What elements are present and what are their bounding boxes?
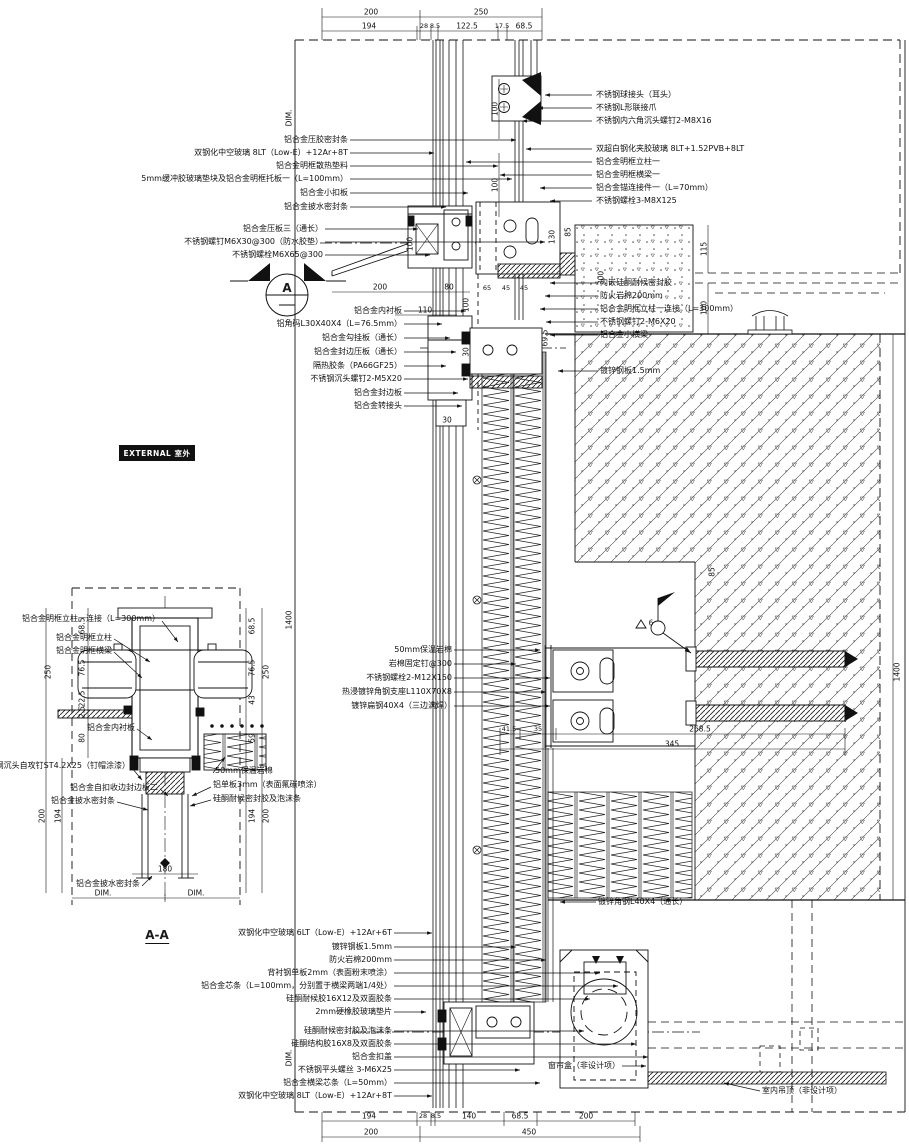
annotation: 铝合金小扣板 (300, 189, 348, 197)
annotation: 铝合金封边压板（通长） (314, 348, 402, 356)
dim-text: 45 (520, 285, 528, 292)
annotation: 铝合金明框立柱 (56, 634, 112, 642)
upper-transom-assembly (332, 202, 575, 278)
insulation-pins (473, 476, 481, 854)
dim-text: 200 (364, 1128, 378, 1136)
dim-text: 100 (491, 178, 499, 192)
annotation: 铝合金勾挂板（通长） (322, 334, 402, 342)
annotation: 镀锌钢板1.5mm (600, 367, 660, 375)
dim-text: 68.5 (78, 618, 86, 635)
annotation: 铝合金明框立柱一 (596, 158, 660, 166)
dim-text: 450 (522, 1128, 536, 1136)
annotation: 5mm缓冲胶玻璃垫块及铝合金明框托板一（L=100mm） (141, 175, 348, 183)
dim-text: 68.5 (512, 1112, 529, 1120)
annotation: 铝合金披水密封条 (51, 797, 115, 805)
dim-text: 140 (462, 1112, 476, 1120)
top-bracket (492, 72, 541, 125)
annotation: 双超白钢化夹胶玻璃 8LT+1.52PVB+8LT (596, 145, 744, 153)
weld-symbol (636, 592, 691, 653)
curtain-wall-detail-drawing: EXTERNAL 室外 A A-A 铝合金压胶密封条 双钢化中空玻璃 8LT（L… (0, 0, 909, 1144)
dim-text: 43 (248, 695, 256, 705)
dim-text: 130 (548, 230, 556, 244)
annotation: 铝合金芯条（L=100mm，分别置于横梁两端1/4处） (201, 982, 392, 990)
annotation: 铝合金明框横梁 (56, 647, 112, 655)
annotation: 铝合金披水密封条 (284, 203, 348, 211)
annotation: 防火岩棉200mm (329, 956, 392, 964)
dim-text: 68.5 (248, 618, 256, 635)
dim-text: 200 (373, 283, 387, 291)
dim-text: 1400 (893, 662, 901, 681)
dim-text: 250 (44, 665, 52, 679)
dim-text: 76.5 (78, 660, 86, 677)
annotation: 铝合金压胶密封条 (284, 136, 348, 144)
dim-text: 59 (248, 733, 256, 743)
annotation: 铝合金横梁芯条（L=50mm） (283, 1079, 392, 1087)
annotation: 不锈钢平头螺丝 3-M6X25 (298, 1066, 392, 1074)
external-badge: EXTERNAL 室外 (119, 445, 195, 461)
annotation: 不锈钢沉头螺钉2-M5X20 (310, 375, 402, 383)
annotation: 热浸镀锌角钢支座L110X70X8 (342, 688, 452, 696)
dim-text: 6 (649, 619, 654, 627)
annotation: 不锈钢沉头自攻钉ST4.2X25（钉帽涂漆） (0, 762, 130, 770)
annotation: 硅酮耐候密封胶及泡沫条 (213, 795, 301, 803)
annotation: 双钢化中空玻璃 8LT（Low-E）+12Ar+8T (238, 1092, 392, 1100)
dim-text: 100 (462, 298, 470, 312)
annotation: 双钢化中空玻璃 8LT（Low-E）+12Ar+8T (194, 149, 348, 157)
dim-text: 76.5 (248, 660, 256, 677)
dim-text: 80 (78, 733, 86, 743)
annotation: 镀锌扁钢40X4（三边满焊） (351, 702, 452, 710)
annotation: 不锈钢螺钉M6X30@300（防水胶垫） (184, 238, 323, 246)
annotation: 不锈钢螺栓2-M12X150 (366, 674, 452, 682)
dim-text: DIM. (285, 1050, 293, 1067)
annotation: 50mm保温岩棉 (394, 646, 452, 654)
dim-text: 110 (418, 306, 432, 314)
dim-text: 194 (362, 22, 376, 30)
dim-text: 69.5 (541, 330, 549, 347)
dim-text: 300 (597, 271, 605, 285)
dim-text: 100 (700, 301, 708, 315)
dim-text: 194 (362, 1112, 376, 1120)
interior-ceiling (648, 900, 905, 1112)
annotation: 50mm保温岩棉 (215, 767, 273, 775)
annotation: 铝角码L30X40X4（L=76.5mm） (277, 320, 402, 328)
annotation: 双钢化中空玻璃 6LT（Low-E）+12Ar+6T (238, 929, 392, 937)
annotation: 硅酮结构胶16X8及双面胶条 (291, 1040, 392, 1048)
dim-text: 28 (420, 23, 428, 30)
dim-text: 22.5 (78, 691, 86, 708)
dim-text: 28 (419, 1113, 427, 1120)
annotation: 背衬钢单板2mm（表面粉末喷涂） (267, 969, 392, 977)
dim-text: 200 (262, 809, 270, 823)
annotation: 铝合金明框立柱一连接（L=300mm） (600, 305, 738, 313)
dim-text: 30 (462, 347, 470, 357)
dim-text: 268.5 (689, 725, 710, 733)
section-marker-letter: A (282, 281, 291, 295)
dim-text: 200 (364, 8, 378, 16)
dim-text: 200 (38, 809, 46, 823)
annotation: 镀锌角钢L40X4（通长） (598, 898, 687, 906)
dim-text: 100 (406, 237, 414, 251)
dim-text: 100 (491, 102, 499, 116)
annotation: 铝合金压板三（通长） (243, 225, 323, 233)
dim-text: 2.5 (78, 706, 86, 718)
annotation: 铝合金披水密封条 (76, 880, 140, 888)
annotation: 不锈钢螺钉2-M6X20 (600, 318, 676, 326)
annotation: 铝合金小横梁 (600, 331, 648, 339)
annotation: 内嵌硅酮耐候密封胶 (600, 279, 672, 287)
annotation: 不锈钢螺栓M6X65@300 (232, 251, 323, 259)
dim-text: 250 (262, 665, 270, 679)
dim-text: 1400 (285, 610, 293, 629)
annotation: 铝合金明框横梁一 (596, 171, 660, 179)
dim-text: 68.5 (516, 22, 533, 30)
annotation: 铝合金明框立柱一连接（L=300mm） (22, 615, 160, 623)
annotation: 岩棉固定钉@300 (389, 660, 452, 668)
dim-text: 85 (564, 227, 572, 237)
dim-text: 41.5 (502, 726, 516, 733)
annotation: 铝合金锚连接件一（L=70mm） (596, 184, 713, 192)
annotation: 铝单板3mm（表面氟碳喷涂） (213, 781, 322, 789)
annotation: 窗帘盒（非设计项） (548, 1062, 620, 1070)
annotation: 铝合金转接头 (354, 402, 402, 410)
dim-text: 65 (483, 285, 491, 292)
dim-text: DIM. (285, 110, 293, 127)
dim-text: DIM. (188, 889, 205, 897)
annotation: 不锈钢L形联接爪 (596, 104, 656, 112)
annotation: 隔热胶条（PA66GF25） (313, 362, 402, 370)
dim-text: 180 (158, 865, 172, 873)
annotation: 不锈钢螺栓3-M8X125 (596, 197, 677, 205)
dim-text: 345 (665, 740, 679, 748)
dim-text: 8.5 (431, 1113, 441, 1120)
annotation: 不锈钢内六角沉头螺钉2-M8X16 (596, 117, 712, 125)
dim-text: 194 (54, 809, 62, 823)
bottom-transom-assembly (438, 1002, 534, 1064)
dim-text: 122.5 (456, 22, 477, 30)
drawing-linework (0, 0, 909, 1144)
aa-section-title: A-A (145, 928, 169, 944)
dim-text: DIM. (95, 889, 112, 897)
annotation: 防火岩棉200mm (600, 292, 663, 300)
annotation: 铝合金内衬板 (87, 724, 135, 732)
annotation: 铝合金自扣收边封边板二 (70, 784, 158, 792)
dim-text: 115 (700, 242, 708, 256)
dim-text: 45 (502, 285, 510, 292)
annotation: 2mm硬橡胶玻璃垫片 (315, 1008, 392, 1016)
pedestal-cap (752, 311, 788, 317)
annotation: 铝合金明框散热垫料 (276, 162, 348, 170)
annotation: 铝合金扣盖 (352, 1053, 392, 1061)
annotation: 硅酮耐候胶16X12及双面胶条 (286, 995, 392, 1003)
annotation: 不锈钢球接头（耳头） (596, 91, 676, 99)
dim-text: 8.5 (430, 23, 440, 30)
dim-text: 250 (474, 8, 488, 16)
annotation: 室内吊顶（非设计项） (762, 1087, 842, 1095)
dim-text: 194 (248, 809, 256, 823)
dim-text: 30 (442, 416, 452, 424)
annotation: 铝合金封边板 (354, 389, 402, 397)
annotation: 镀锌钢板1.5mm (332, 943, 392, 951)
dim-text: 200 (579, 1112, 593, 1120)
dim-text: 17.5 (495, 23, 509, 30)
dim-text: 80 (444, 283, 454, 291)
dim-text: 35 (534, 726, 542, 733)
dim-text: 85 (708, 567, 716, 577)
flashing (332, 243, 410, 276)
annotation: 铝合金内衬板 (354, 307, 402, 315)
annotation: 硅酮耐候密封胶及泡沫条 (304, 1027, 392, 1035)
